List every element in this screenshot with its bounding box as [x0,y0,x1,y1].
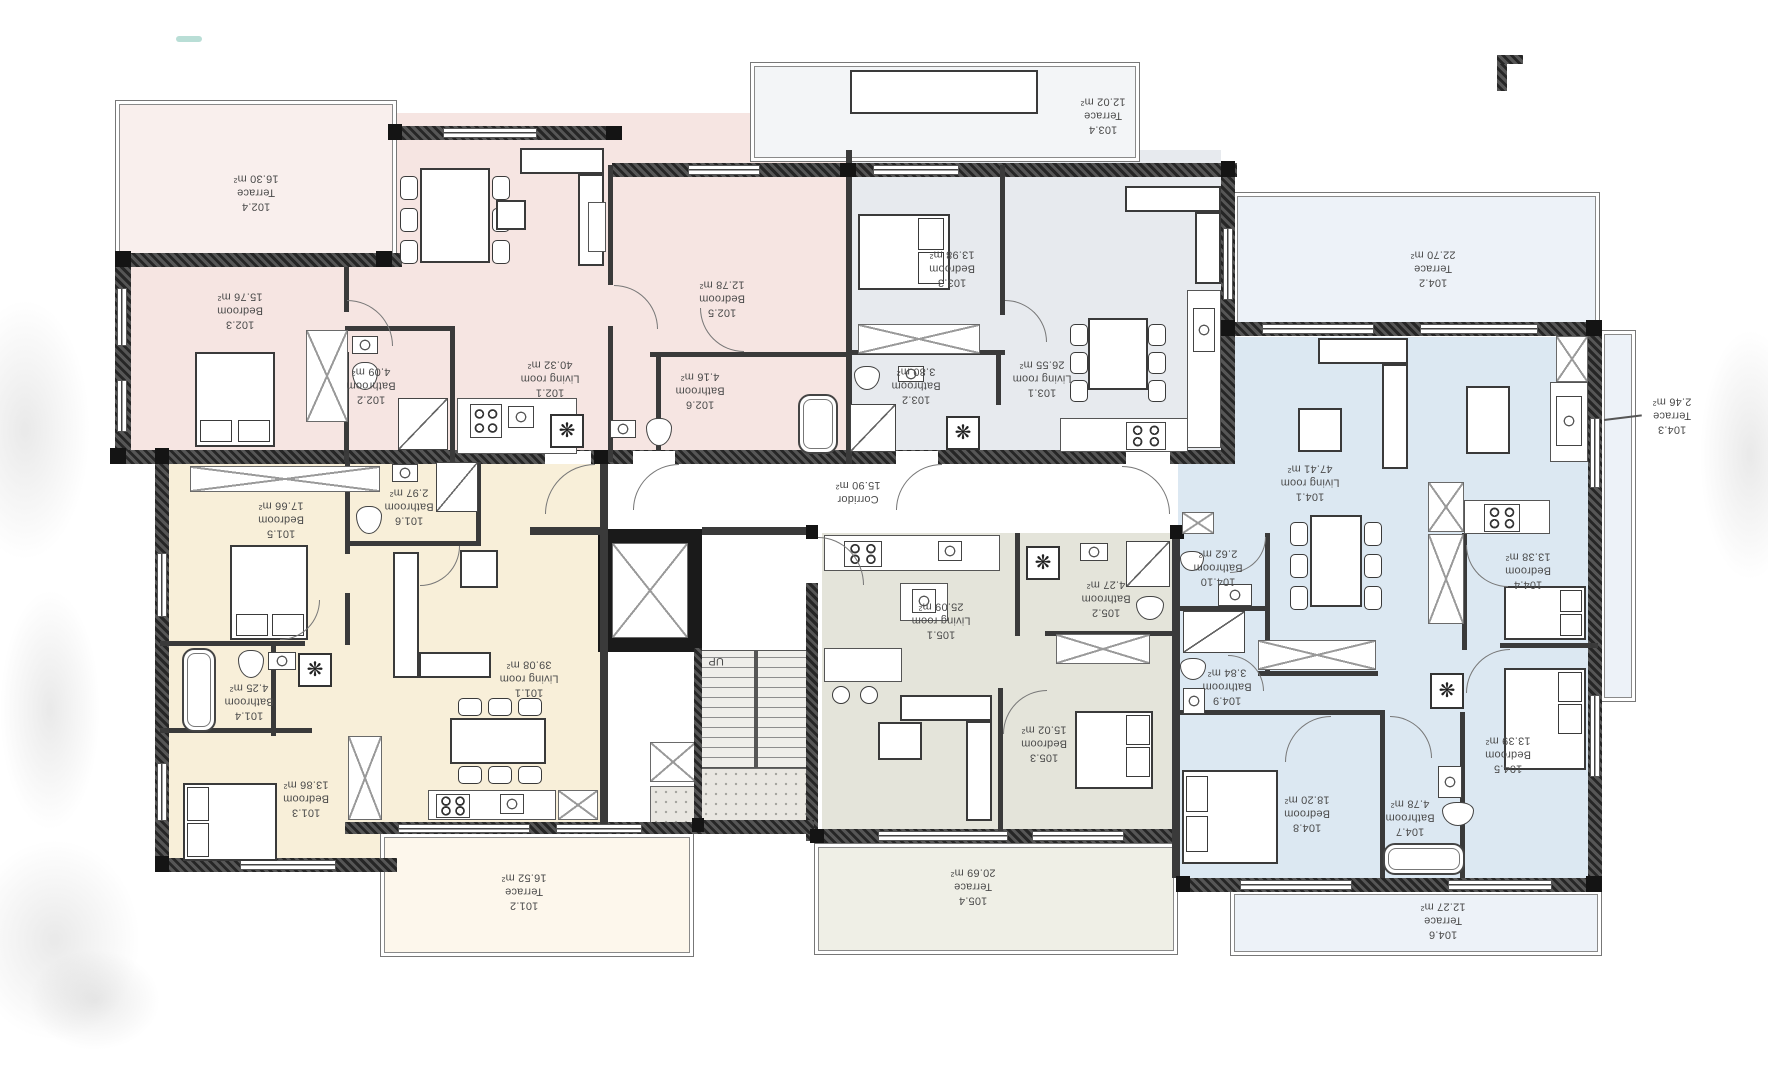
bathroom-sink [610,420,636,438]
wall-partition [608,165,613,285]
bar-stool [832,686,850,704]
wall-pier [1221,161,1235,177]
wall-partition [1172,527,1180,878]
stair-landing [700,768,812,826]
window [1032,831,1124,841]
cabinet [1556,336,1588,382]
room-label-101-1: 101.1 Living room 39.08 m² [499,657,558,698]
bathtub [182,648,216,732]
wall-pier [1586,876,1602,892]
window [117,380,127,432]
room-area: 25.09 m² [911,599,970,613]
room-name: Corridor [835,491,880,505]
room-label-101-6: 101.6 Bathroom 2.97 m² [384,485,433,526]
dining-table [1088,318,1148,390]
pillow [1560,590,1582,612]
room-name: Terrace [1420,913,1465,927]
window [878,831,1008,841]
room-label-104-10: 104.10 Bathroom 2.62 m² [1193,546,1242,587]
chair [492,176,510,200]
chair [1290,586,1308,610]
chair [1070,352,1088,374]
cabinet [1182,512,1214,534]
room-name: Living room [911,613,970,627]
wall-partition [450,326,455,462]
wall [115,253,402,267]
room-area: 4.25 m² [224,680,273,694]
bathtub [798,394,838,454]
fan-glyph: ❋ [559,421,576,441]
wardrobe [190,466,380,492]
room-area: 2.97 m² [384,485,433,499]
wall-partition [996,355,1001,405]
room-id: 101.4 [224,708,273,722]
room-name: Terrace [501,884,546,898]
kitchen-sink [500,794,524,814]
room-name: Living room [520,371,579,385]
pillow [238,420,270,442]
cooktop [470,404,502,438]
room-area: 26.55 m² [1012,357,1071,371]
pillow [1558,672,1582,702]
wall-pier [692,818,704,832]
chair [458,698,482,716]
room-area: 13.38 m² [1505,549,1551,563]
room-id: 103.2 [891,392,940,406]
window [240,860,336,870]
door-opening [1126,451,1170,464]
room-area: 13.39 m² [1485,733,1531,747]
fan-icon: ❋ [1026,546,1060,580]
dining-table [420,168,490,263]
room-label-104-2: 104.2 Terrace 22.70 m² [1410,247,1455,288]
terrace-outline [1600,330,1636,702]
room-label-105-2: 105.2 Bathroom 4.27 m² [1081,577,1130,618]
room-area: 13.86 m² [283,777,329,791]
chair [458,766,482,784]
room-label-104-7: 104.7 Bathroom 4.78 m² [1385,796,1434,837]
wall [694,648,702,834]
chair [1364,522,1382,546]
chair [1364,586,1382,610]
chair [1364,554,1382,578]
room-name: Bedroom [1485,747,1531,761]
room-id: 104.2 [1410,275,1455,289]
wall-pier [1176,876,1190,892]
room-name: Bathroom [346,378,395,392]
room-id: 105.3 [1021,750,1067,764]
scan-artifact [0,590,100,830]
stairs-direction: UP [708,653,724,667]
room-id: 104.7 [1385,824,1434,838]
room-id: 101.5 [258,526,304,540]
room-name: Terrace [233,185,278,199]
sofa [966,721,992,821]
pillow [1126,747,1150,777]
wall-partition [650,352,848,357]
wall-pier [1221,320,1235,336]
chair [492,240,510,264]
room-id: 104.5 [1485,761,1531,775]
chair [518,766,542,784]
pillow [1186,816,1208,852]
wardrobe [306,330,348,422]
room-name: Bedroom [1021,736,1067,750]
room-label-104-5: 104.5 Bedroom 13.39 m² [1485,733,1531,774]
wall-pier [388,124,402,140]
room-name: Bathroom [1081,591,1130,605]
door-arc [633,464,679,510]
room-label-103-2: 103.2 Bathroom 3.80 m² [891,364,940,405]
room-name: Living room [1280,475,1339,489]
scan-artifact [0,300,90,560]
room-id: 101.6 [384,513,433,527]
side-table [1466,386,1510,454]
wall-partition [345,593,350,645]
room-label-101-3: 101.3 Bedroom 13.86 m² [283,777,329,818]
window [157,763,167,821]
sofa [1125,186,1221,212]
window [873,165,959,175]
window [1262,324,1374,334]
coffee-table [878,722,922,760]
fan-icon: ❋ [1430,673,1464,709]
room-area: 40.32 m² [520,357,579,371]
room-area: 15.76 m² [217,289,263,303]
shower [436,462,478,512]
room-label-104-4: 104.4 Bedroom 13.38 m² [1505,549,1551,590]
wall-partition [1500,643,1598,648]
room-area: 15.90 m² [835,477,880,491]
door-opening [896,451,938,464]
sofa [393,552,419,678]
room-name: Bathroom [891,378,940,392]
wall-partition [656,357,661,462]
room-area: 39.08 m² [499,657,558,671]
scan-artifact [1700,330,1768,580]
room-name: Bathroom [1202,679,1251,693]
room-name: Living room [1012,371,1071,385]
room-area: 4.16 m² [675,369,724,383]
window [117,288,127,346]
room-area: 3.84 m² [1202,665,1251,679]
room-label-103-1: 103.1 Living room 26.55 m² [1012,357,1071,398]
cooktop [1126,422,1166,450]
room-name: Terrace [1653,408,1692,422]
room-area: 47.41 m² [1280,461,1339,475]
cooktop [1484,504,1520,532]
room-label-101-4: 101.4 Bathroom 4.25 m² [224,680,273,721]
room-label-103-3: 103.3 Bedroom 13.98 m² [929,247,975,288]
terrace-planter [850,70,1038,114]
wall-pier [155,856,169,872]
wall-pier [806,525,818,539]
room-name: Bathroom [1193,560,1242,574]
wall-partition [998,688,1003,833]
window [398,824,530,833]
chair [1148,380,1166,402]
room-name: Living room [499,671,558,685]
room-area: 4.78 m² [1385,796,1434,810]
room-name: Bathroom [384,499,433,513]
room-area: 12.27 m² [1420,899,1465,913]
window [1448,880,1552,890]
room-id: 105.1 [911,627,970,641]
coffee-table [496,200,526,230]
stair-stringer [754,650,758,768]
wall-partition [1000,165,1005,315]
wall-partition [1015,533,1020,636]
pillow [1558,704,1582,734]
cooktop [436,794,470,818]
shower [850,404,896,452]
wall-fragment [1497,55,1523,64]
chair [1148,324,1166,346]
wall-partition [702,527,812,535]
fan-glyph: ❋ [307,660,324,680]
room-id: 105.4 [950,893,995,907]
room-id: 103.3 [929,275,975,289]
refrigerator [558,790,598,820]
pillow [236,614,268,636]
room-label-102-2: 102.2 Bathroom 4.09 m² [346,364,395,405]
room-label-102-6: 102.6 Bathroom 4.16 m² [675,369,724,410]
room-id: 102.1 [520,385,579,399]
kitchen-sink [938,541,962,561]
sofa [1382,364,1408,469]
room-label-104-1: 104.1 Living room 47.41 m² [1280,461,1339,502]
window [1223,228,1233,300]
room-name: Terrace [1410,261,1455,275]
wardrobe [858,324,980,354]
room-name: Bathroom [224,694,273,708]
room-area: 20.69 m² [950,865,995,879]
pillow [200,420,232,442]
room-id: 103.1 [1012,385,1071,399]
wall-partition [600,462,608,834]
chair [1148,352,1166,374]
room-name: Bedroom [699,291,745,305]
room-name: Bedroom [1284,806,1330,820]
sofa [520,148,604,174]
room-area: 4.27 m² [1081,577,1130,591]
side-table [460,550,498,588]
wall-pier [594,450,608,464]
chair [488,766,512,784]
scan-artifact [30,950,160,1050]
chair [1070,380,1088,402]
sofa [1318,338,1408,364]
dining-table [1310,515,1362,607]
wall [1221,163,1235,464]
chair [488,698,512,716]
bathroom-sink [268,652,296,670]
coffee-table [1298,408,1342,452]
room-id: 104.8 [1284,820,1330,834]
wall-pier [1586,320,1602,336]
room-area: 3.80 m² [891,364,940,378]
floor-plan: ❋ ❋ ❋ [0,0,1768,1077]
room-label-104-3: 104.3 Terrace 2.46 m² [1653,394,1692,435]
window [1240,880,1352,890]
room-label-105-1: 105.1 Living room 25.09 m² [911,599,970,640]
stairs-up-label: UP [708,653,724,667]
room-area: 13.98 m² [929,247,975,261]
room-label-104-6: 104.6 Terrace 12.27 m² [1420,899,1465,940]
wall [694,820,814,834]
room-name: Bedroom [258,512,304,526]
room-label-102-5: 102.5 Bedroom 12.78 m² [699,277,745,318]
pillow [918,218,944,250]
window [556,824,642,833]
fan-glyph: ❋ [1035,553,1052,573]
shower [1183,611,1245,653]
room-id: 104.4 [1505,577,1551,591]
refrigerator [1428,482,1464,532]
wall-pier [110,448,126,464]
door-arc [1122,466,1170,514]
room-area: 22.70 m² [1410,247,1455,261]
pillow [1126,715,1150,745]
wall [1588,322,1602,890]
room-area: 12.78 m² [699,277,745,291]
terrace-outline [814,843,1178,955]
wall-pier [115,251,131,267]
chair [400,208,418,232]
shower [398,398,448,450]
wall-partition [160,728,312,733]
fan-icon: ❋ [298,653,332,687]
dining-table [450,718,546,764]
fan-icon: ❋ [550,414,584,448]
window [1590,418,1600,488]
room-area: 15.02 m² [1021,722,1067,736]
room-name: Bathroom [1385,810,1434,824]
wall-pier [155,448,169,464]
shower [1126,541,1170,587]
chair [400,176,418,200]
room-area: 12.02 m² [1080,94,1125,108]
sofa [900,695,992,721]
window [1590,695,1600,777]
window [688,165,760,175]
pillow [187,823,209,857]
bathroom-sink [1080,543,1108,561]
scan-artifact [176,36,202,42]
door-arc [896,464,942,510]
chair [1070,324,1088,346]
sofa [419,652,491,678]
room-id: 104.9 [1202,693,1251,707]
window [157,553,167,617]
window [1420,324,1538,334]
wall-pier [376,251,392,267]
room-id: 101.1 [499,685,558,699]
wall-partition [160,641,305,646]
room-area: 2.46 m² [1653,394,1692,408]
room-id: 104.6 [1420,927,1465,941]
wall-partition [608,326,613,462]
room-id: 104.10 [1193,574,1242,588]
wardrobe [1258,640,1376,670]
wall-partition [1258,671,1378,676]
room-name: Bedroom [929,261,975,275]
room-id: 104.1 [1280,489,1339,503]
wardrobe [348,736,382,820]
bathtub [1383,843,1465,875]
room-name: Bedroom [283,791,329,805]
pillow [1560,614,1582,636]
room-area: 2.62 m² [1193,546,1242,560]
room-id: 102.6 [675,397,724,411]
wall-pier [810,829,824,843]
room-area: 4.09 m² [346,364,395,378]
room-name: Bedroom [217,303,263,317]
room-label-105-4: 105.4 Terrace 20.69 m² [950,865,995,906]
fan-glyph: ❋ [955,423,972,443]
room-id: 102.5 [699,305,745,319]
room-area: 17.66 m² [258,498,304,512]
room-name: Terrace [1080,108,1125,122]
room-label-101-2: 101.2 Terrace 16.52 m² [501,870,546,911]
bathroom-sink [392,464,418,482]
room-label-102-1: 102.1 Living room 40.32 m² [520,357,579,398]
room-name: Bathroom [675,383,724,397]
room-id: 104.3 [1653,422,1692,436]
bar-stool [860,686,878,704]
kitchen-sink [508,406,534,428]
breakfast-bar [824,648,902,682]
fan-glyph: ❋ [1439,681,1456,701]
room-area: 16.30 m² [233,171,278,185]
elevator-car [612,543,688,638]
fan-icon: ❋ [946,416,980,450]
wall-partition [1178,710,1385,715]
chair [400,240,418,264]
room-name: Terrace [950,879,995,893]
door-opening [806,537,818,583]
kitchen-sink [1193,308,1215,352]
room-name: Bedroom [1505,563,1551,577]
bathroom-sink [1438,766,1462,798]
corridor-label: Corridor 15.90 m² [835,477,880,505]
room-id: 105.2 [1081,605,1130,619]
room-label-104-9: 104.9 Bathroom 3.84 m² [1202,665,1251,706]
sofa [1195,212,1221,284]
pillow [1186,776,1208,812]
door-opening [633,451,675,464]
room-id: 101.3 [283,805,329,819]
duct-shaft [650,742,696,782]
room-id: 102.2 [346,392,395,406]
chair [1290,554,1308,578]
tv-cabinet [588,202,606,252]
wall-pier [840,163,856,177]
room-id: 101.2 [501,898,546,912]
wardrobe [1056,634,1150,664]
kitchen-counter [1060,418,1188,452]
room-area: 16.52 m² [501,870,546,884]
room-area: 18.20 m² [1284,792,1330,806]
window [443,128,537,138]
terrace-outline [1230,890,1602,956]
room-label-102-4: 102.4 Terrace 16.30 m² [233,171,278,212]
room-id: 102.3 [217,317,263,331]
room-label-105-3: 105.3 Bedroom 15.02 m² [1021,722,1067,763]
wall-partition [530,527,602,535]
chair [1290,522,1308,546]
kitchen-sink [1556,396,1582,446]
